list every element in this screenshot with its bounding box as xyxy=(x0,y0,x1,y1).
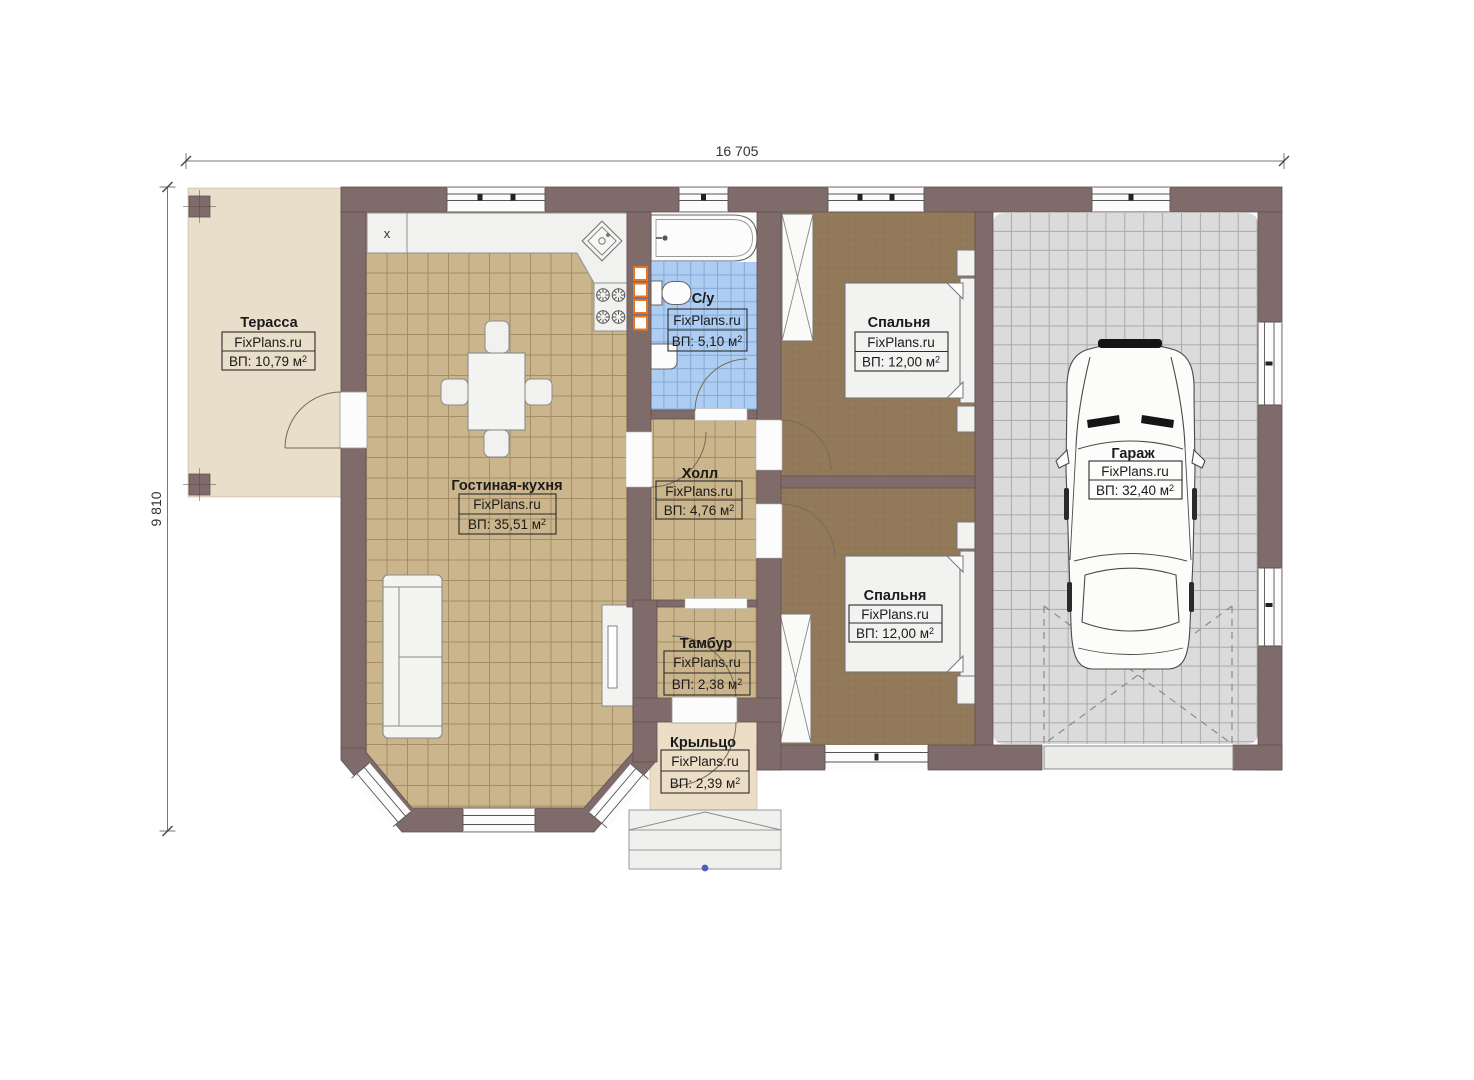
svg-text:9 810: 9 810 xyxy=(148,491,164,526)
svg-text:ВП: 12,00 м2: ВП: 12,00 м2 xyxy=(856,626,934,641)
svg-text:FixPlans.ru: FixPlans.ru xyxy=(861,607,929,622)
svg-text:С/у: С/у xyxy=(692,291,715,307)
svg-text:ВП: 12,00 м2: ВП: 12,00 м2 xyxy=(862,355,940,370)
svg-text:ВП: 10,79 м2: ВП: 10,79 м2 xyxy=(229,354,307,369)
svg-text:FixPlans.ru: FixPlans.ru xyxy=(673,655,741,670)
svg-text:x: x xyxy=(384,226,391,241)
svg-text:FixPlans.ru: FixPlans.ru xyxy=(671,754,739,769)
svg-text:Спальня: Спальня xyxy=(864,588,927,604)
svg-text:ВП: 35,51 м2: ВП: 35,51 м2 xyxy=(468,517,546,532)
svg-text:FixPlans.ru: FixPlans.ru xyxy=(665,484,733,499)
svg-text:ВП: 4,76 м2: ВП: 4,76 м2 xyxy=(664,503,735,518)
svg-text:Гостиная-кухня: Гостиная-кухня xyxy=(451,478,562,494)
svg-text:FixPlans.ru: FixPlans.ru xyxy=(473,497,541,512)
svg-text:ВП: 5,10 м2: ВП: 5,10 м2 xyxy=(672,334,743,349)
svg-text:ВП: 2,39 м2: ВП: 2,39 м2 xyxy=(670,776,741,791)
svg-text:FixPlans.ru: FixPlans.ru xyxy=(1101,464,1169,479)
svg-text:FixPlans.ru: FixPlans.ru xyxy=(234,335,302,350)
svg-text:ВП: 32,40 м2: ВП: 32,40 м2 xyxy=(1096,483,1174,498)
svg-text:Терасса: Терасса xyxy=(240,315,298,331)
svg-text:Спальня: Спальня xyxy=(868,315,931,331)
svg-text:16 705: 16 705 xyxy=(716,143,759,159)
svg-text:FixPlans.ru: FixPlans.ru xyxy=(673,313,741,328)
svg-text:Холл: Холл xyxy=(682,466,718,482)
svg-text:ВП: 2,38 м2: ВП: 2,38 м2 xyxy=(672,677,743,692)
svg-text:FixPlans.ru: FixPlans.ru xyxy=(867,335,935,350)
svg-text:Тамбур: Тамбур xyxy=(680,636,733,652)
svg-text:Гараж: Гараж xyxy=(1111,446,1155,462)
svg-text:Крыльцо: Крыльцо xyxy=(670,735,736,751)
